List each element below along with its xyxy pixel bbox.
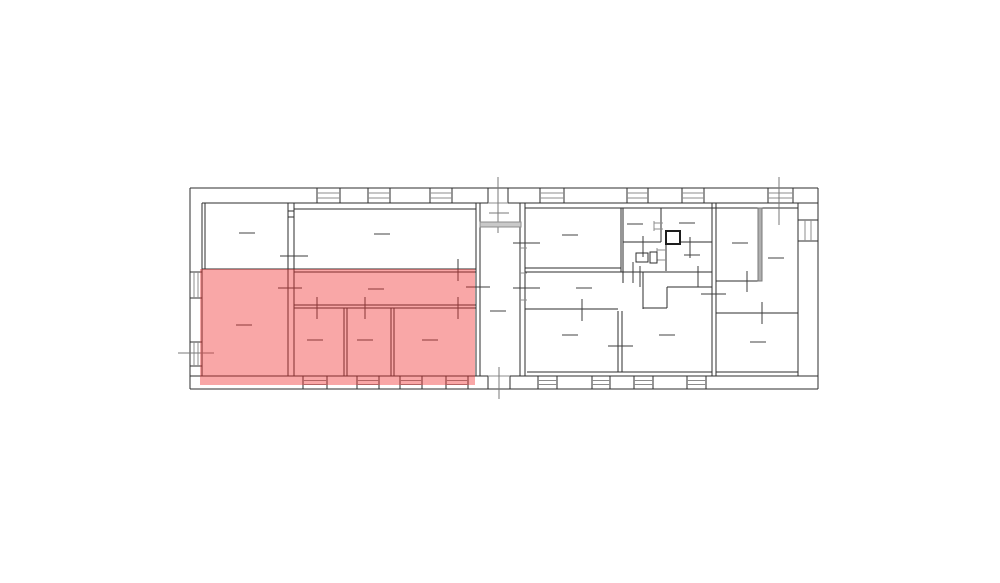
stair-landing [480,222,521,227]
highlighted-area[interactable] [200,269,475,385]
floor-plan-svg [0,0,1000,583]
shaft-box [666,231,680,244]
floor-plan-canvas [0,0,1000,583]
plumbing-fixture [650,252,657,263]
plumbing-fixture [636,253,648,262]
hatched-wall [758,208,762,281]
